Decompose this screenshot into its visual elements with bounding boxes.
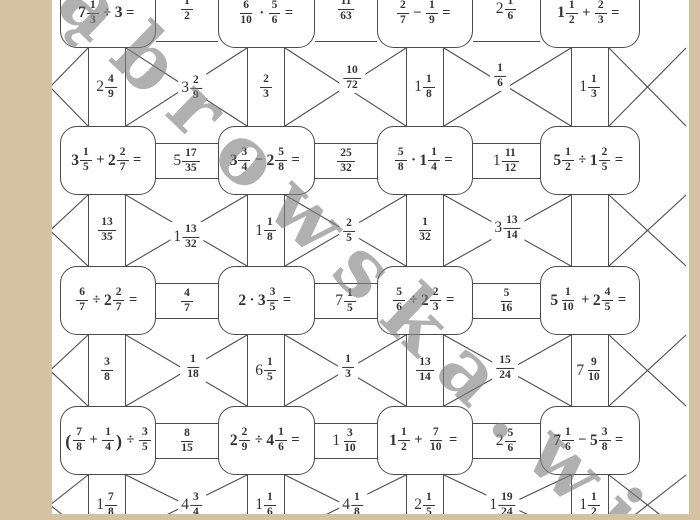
answer-channel-vertical: 118 xyxy=(406,48,444,126)
diagonal-answer-label: 16 xyxy=(490,61,510,91)
diagonal-answer-label: 118 xyxy=(180,352,206,382)
answer-channel-horizontal: 1310 xyxy=(315,423,377,459)
problem-node: 56÷223= xyxy=(377,266,473,335)
answer-channel-horizontal: 2532 xyxy=(315,143,377,179)
problem-node: 2·335= xyxy=(218,266,315,335)
answer-channel-horizontal: 1163 xyxy=(315,0,377,42)
answer-channel-horizontal: 216 xyxy=(473,0,540,42)
answer-channel-vertical: 38 xyxy=(88,335,126,406)
page-frame: 713÷3= 610·56= 27−19= 112+23= 315+227= 3… xyxy=(0,0,700,520)
problem-node: 5110+245= xyxy=(540,266,640,335)
problem-node: 67÷227= xyxy=(60,266,156,335)
answer-channel-vertical xyxy=(571,195,609,266)
answer-channel-horizontal: 815 xyxy=(156,423,218,459)
answer-channel-vertical: 615 xyxy=(247,335,285,406)
problem-node: 58·114= xyxy=(377,126,473,195)
frame-left xyxy=(0,0,52,520)
answer-channel-horizontal: 516 xyxy=(473,283,540,319)
answer-channel-horizontal: 11112 xyxy=(473,143,540,179)
answer-channel-vertical: 1335 xyxy=(88,195,126,266)
diagonal-answer-label: 1524 xyxy=(492,353,518,383)
answer-channel-horizontal: 12 xyxy=(156,0,218,42)
answer-channel-vertical: 118 xyxy=(247,195,285,266)
diagonal-answer-label: 31314 xyxy=(491,213,524,243)
problem-node: 334−258= xyxy=(218,126,315,195)
answer-channel-vertical: 132 xyxy=(406,195,444,266)
problem-node: 27−19= xyxy=(377,0,473,48)
answer-channel-horizontal: 51735 xyxy=(156,143,218,179)
answer-channel-vertical: 249 xyxy=(88,48,126,126)
answer-channel-vertical: 113 xyxy=(571,48,609,126)
problem-node: 716−538= xyxy=(540,406,640,475)
problem-node: 112+23= xyxy=(540,0,640,48)
diagonal-answer-label: 25 xyxy=(339,216,359,246)
problem-node: 315+227= xyxy=(60,126,156,195)
diagonal-answer-label: 13 xyxy=(338,352,358,382)
problem-node: (78+14)÷35 xyxy=(60,406,156,475)
diagonal-answer-label: 329 xyxy=(178,73,206,103)
answer-channel-vertical: 1314 xyxy=(406,335,444,406)
answer-channel-horizontal: 256 xyxy=(473,423,540,459)
answer-channel-horizontal: 715 xyxy=(315,283,377,319)
answer-channel-vertical: 23 xyxy=(247,48,285,126)
problem-node: 112+710= xyxy=(377,406,473,475)
problem-node: 512÷125= xyxy=(540,126,640,195)
diagonal-answer-label: 1072 xyxy=(339,63,365,93)
problem-node: 610·56= xyxy=(218,0,315,48)
frame-right xyxy=(689,0,700,520)
answer-channel-vertical: 7910 xyxy=(571,335,609,406)
problem-node: 713÷3= xyxy=(60,0,156,48)
frame-bottom xyxy=(0,514,700,520)
diagonal-answer-label: 11332 xyxy=(170,222,203,252)
problem-node: 229÷416= xyxy=(218,406,315,475)
answer-channel-horizontal: 47 xyxy=(156,283,218,319)
